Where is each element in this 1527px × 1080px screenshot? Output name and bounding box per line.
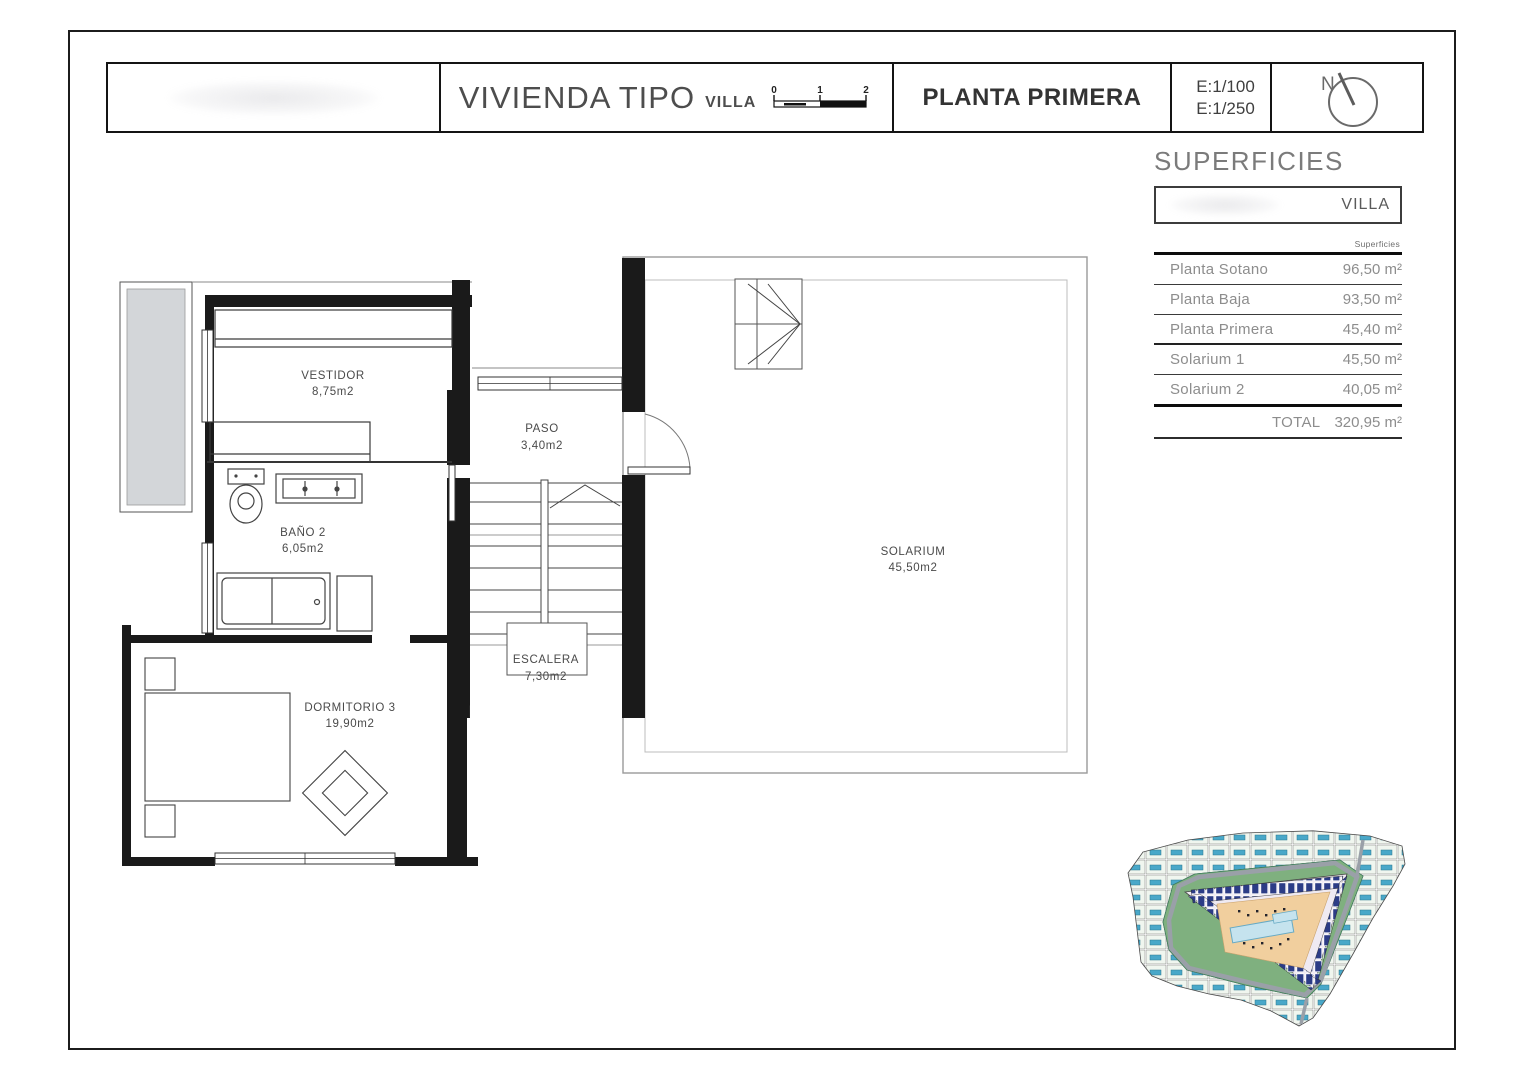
bathroom-door-leaf — [449, 465, 455, 521]
villa-name: VILLA — [1341, 196, 1390, 214]
villa-header-box: VILLA — [1154, 186, 1402, 224]
table-row: Planta Primera 45,40 m² — [1154, 315, 1402, 345]
solarium-steps — [735, 279, 802, 369]
superficies-table: Planta Sotano 96,50 m² Planta Baja 93,50… — [1154, 252, 1402, 439]
table-row: Planta Sotano 96,50 m² — [1154, 255, 1402, 285]
room-label-escalera: ESCALERA — [513, 654, 579, 666]
svg-text:1: 1 — [818, 85, 824, 96]
plan-name: PLANTA PRIMERA — [923, 84, 1142, 112]
bath-cabinet — [337, 576, 372, 631]
svg-text:7,30m2: 7,30m2 — [525, 671, 567, 683]
room-label-bano2: BAÑO 2 — [280, 526, 326, 539]
svg-text:6,05m2: 6,05m2 — [282, 543, 324, 555]
solarium-door — [628, 414, 690, 474]
room-label-dormitorio3: DORMITORIO 3 — [304, 702, 395, 714]
floor-plan: VESTIDOR 8,75m2 PASO 3,40m2 BAÑO 2 6,05m… — [100, 240, 1100, 890]
armchair — [303, 751, 388, 836]
superficies-column-header: Superficies — [1154, 239, 1402, 249]
table-row: Solarium 2 40,05 m² — [1154, 375, 1402, 407]
svg-text:8,75m2: 8,75m2 — [312, 386, 354, 398]
superficies-title: SUPERFICIES — [1154, 146, 1402, 177]
scale-2: E:1/250 — [1196, 99, 1255, 119]
table-total-row: TOTAL 320,95 m² — [1154, 407, 1402, 439]
title-main-cell: VIVIENDA TIPO VILLA 0 1 2 — [439, 64, 892, 131]
vestidor-counter — [210, 422, 370, 462]
svg-text:19,90m2: 19,90m2 — [326, 718, 375, 730]
scale-bar: 0 1 2 — [766, 81, 874, 115]
table-row: Solarium 1 45,50 m² — [1154, 345, 1402, 375]
svg-text:45,50m2: 45,50m2 — [889, 562, 938, 574]
superficies-panel: SUPERFICIES VILLA Superficies Planta Sot… — [1154, 146, 1402, 439]
bed — [145, 658, 290, 837]
bathtub — [217, 573, 330, 629]
sink-vanity — [276, 474, 362, 503]
project-title: VIVIENDA TIPO — [459, 80, 695, 116]
room-label-solarium: SOLARIUM — [881, 546, 946, 558]
toilet — [228, 469, 264, 523]
faded-logo-small — [1170, 194, 1280, 216]
vestidor-wardrobe — [215, 310, 452, 347]
scale-1: E:1/100 — [1196, 77, 1255, 97]
terrace-below — [120, 282, 192, 512]
project-subtitle: VILLA — [705, 94, 756, 112]
site-plan-map — [1125, 830, 1410, 1030]
title-plan-cell: PLANTA PRIMERA — [892, 64, 1170, 131]
north-arrow-icon: N — [1291, 66, 1401, 130]
title-north-cell: N — [1270, 64, 1420, 131]
room-label-vestidor: VESTIDOR — [301, 370, 365, 382]
room-label-paso: PASO — [525, 423, 559, 435]
svg-text:3,40m2: 3,40m2 — [521, 440, 563, 452]
svg-text:0: 0 — [772, 85, 778, 96]
solarium-boundary — [623, 257, 1087, 773]
svg-text:N: N — [1321, 74, 1335, 95]
title-scales-cell: E:1/100 E:1/250 — [1170, 64, 1270, 131]
title-block: VIVIENDA TIPO VILLA 0 1 2 PLANTA PRIMERA… — [106, 62, 1424, 133]
faded-logo — [169, 81, 379, 115]
table-row: Planta Baja 93,50 m² — [1154, 285, 1402, 315]
title-logo-cell — [108, 64, 439, 131]
svg-text:2: 2 — [864, 85, 870, 96]
